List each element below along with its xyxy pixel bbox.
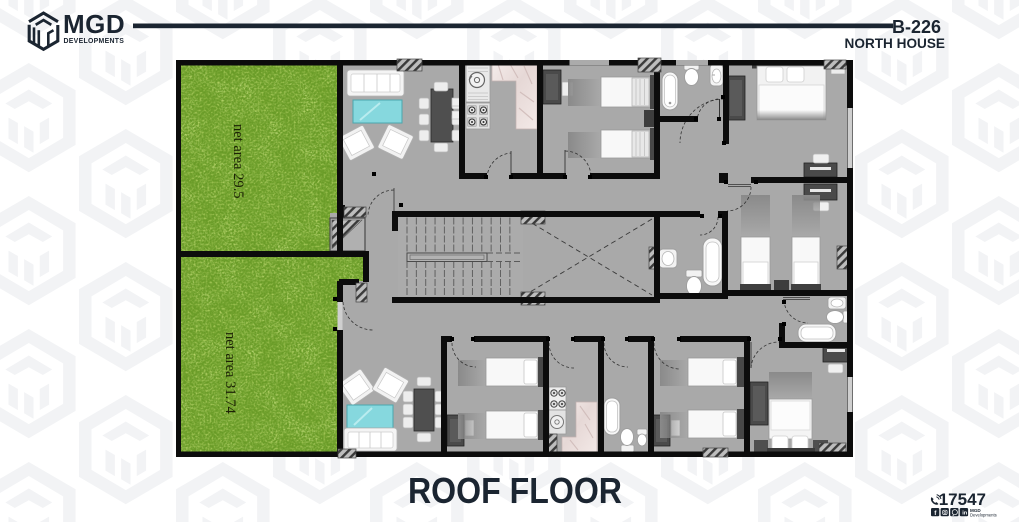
svg-text:in: in	[962, 511, 968, 517]
svg-text:net area 29.5: net area 29.5	[230, 124, 246, 198]
svg-text:NORTH HOUSE: NORTH HOUSE	[845, 36, 945, 51]
svg-text:DEVELOPMENTS: DEVELOPMENTS	[64, 38, 125, 45]
svg-text:Developments: Developments	[970, 513, 997, 518]
svg-text:net area 31.74: net area 31.74	[222, 332, 238, 414]
svg-text:B-226: B-226	[892, 17, 941, 37]
svg-text:17547: 17547	[939, 490, 986, 509]
svg-text:ROOF FLOOR: ROOF FLOOR	[408, 470, 622, 511]
svg-text:MGD: MGD	[63, 9, 125, 39]
